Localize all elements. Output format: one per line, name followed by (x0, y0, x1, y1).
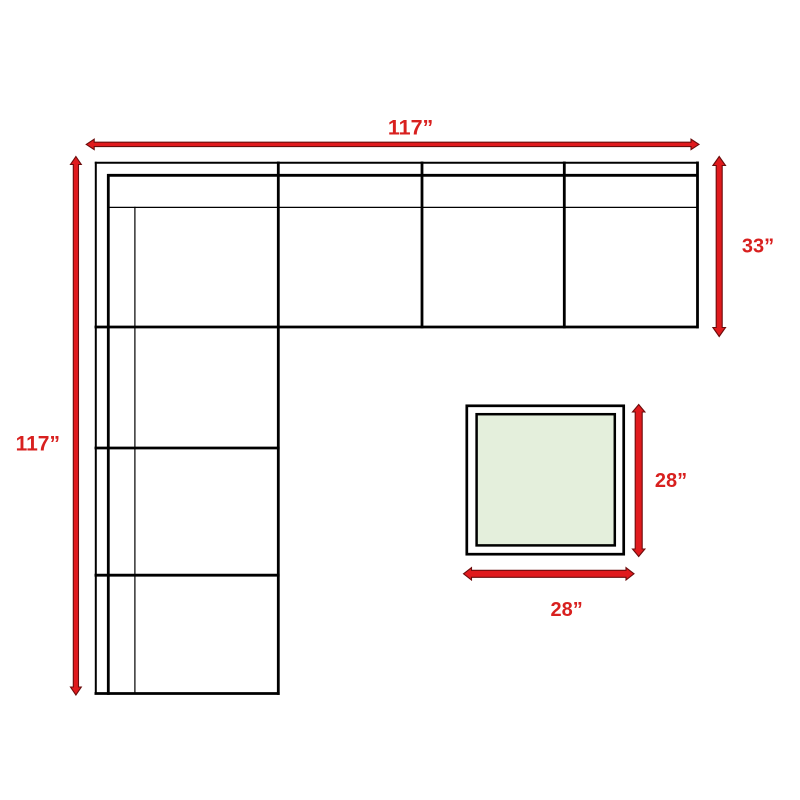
svg-text:117”: 117” (388, 116, 433, 140)
svg-text:117”: 117” (16, 433, 60, 456)
svg-text:28”: 28” (655, 470, 687, 492)
svg-text:28”: 28” (550, 599, 582, 621)
svg-text:33”: 33” (742, 235, 774, 257)
